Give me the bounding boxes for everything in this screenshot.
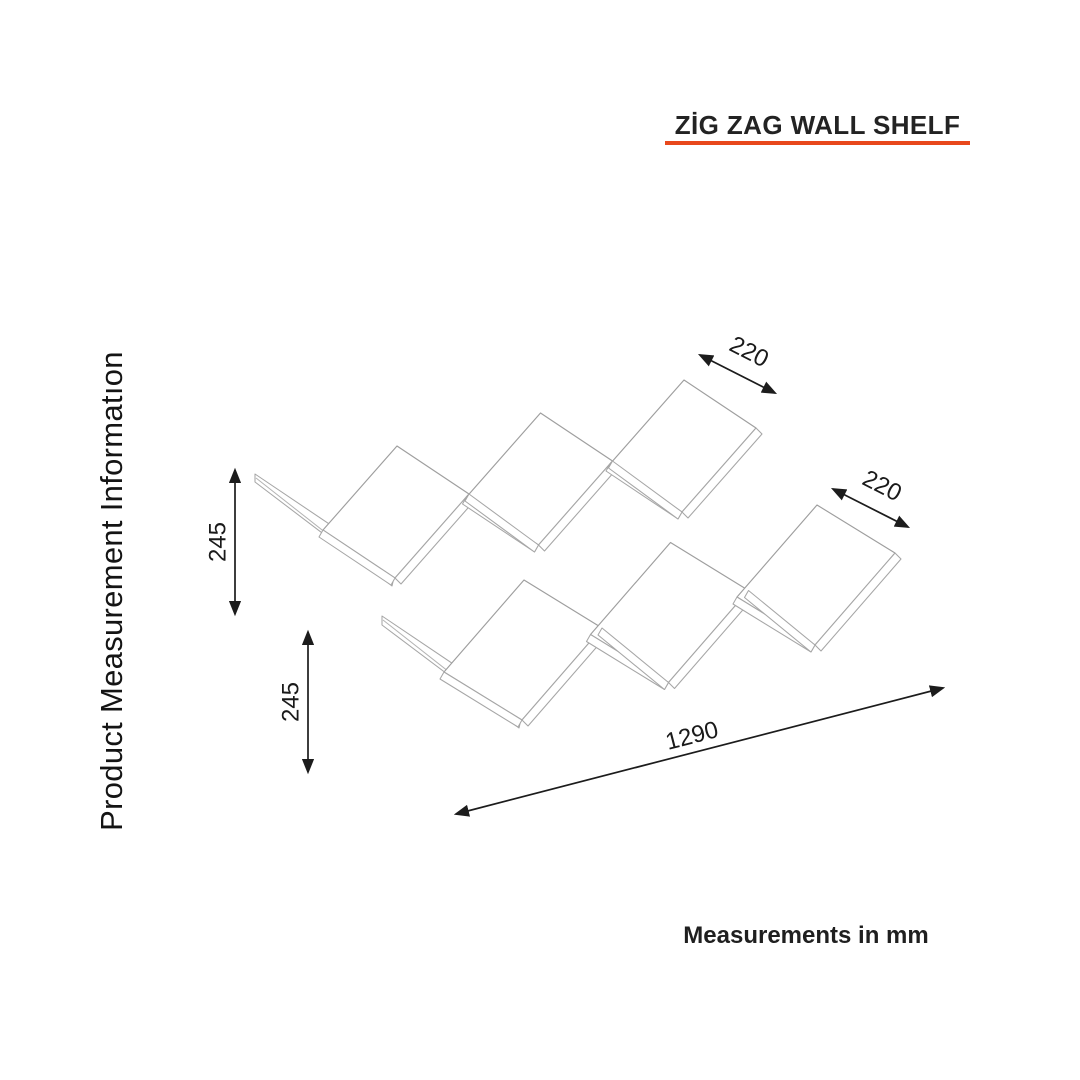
shelf-panel [610,380,756,512]
units-note: Measurements in mm [683,922,928,950]
shelf-isometric-drawing: 220 220 245 245 1290 [0,0,1080,1080]
shelf-panel [444,580,602,720]
dim-depth-right-label: 220 [858,465,906,507]
shelf-panel [323,446,469,578]
shelf-panel [737,505,895,645]
dim-depth-top-label: 220 [725,331,773,373]
shelf-panel [591,543,749,683]
shelf-bottom-row [382,505,901,728]
dim-length-label: 1290 [663,716,721,756]
dim-height-lower-label: 245 [278,682,305,722]
measurement-sheet: ZİG ZAG WALL SHELF Product Measurement I… [0,0,1080,1080]
shelf-panel [467,413,613,545]
dim-height-upper-label: 245 [205,522,232,562]
